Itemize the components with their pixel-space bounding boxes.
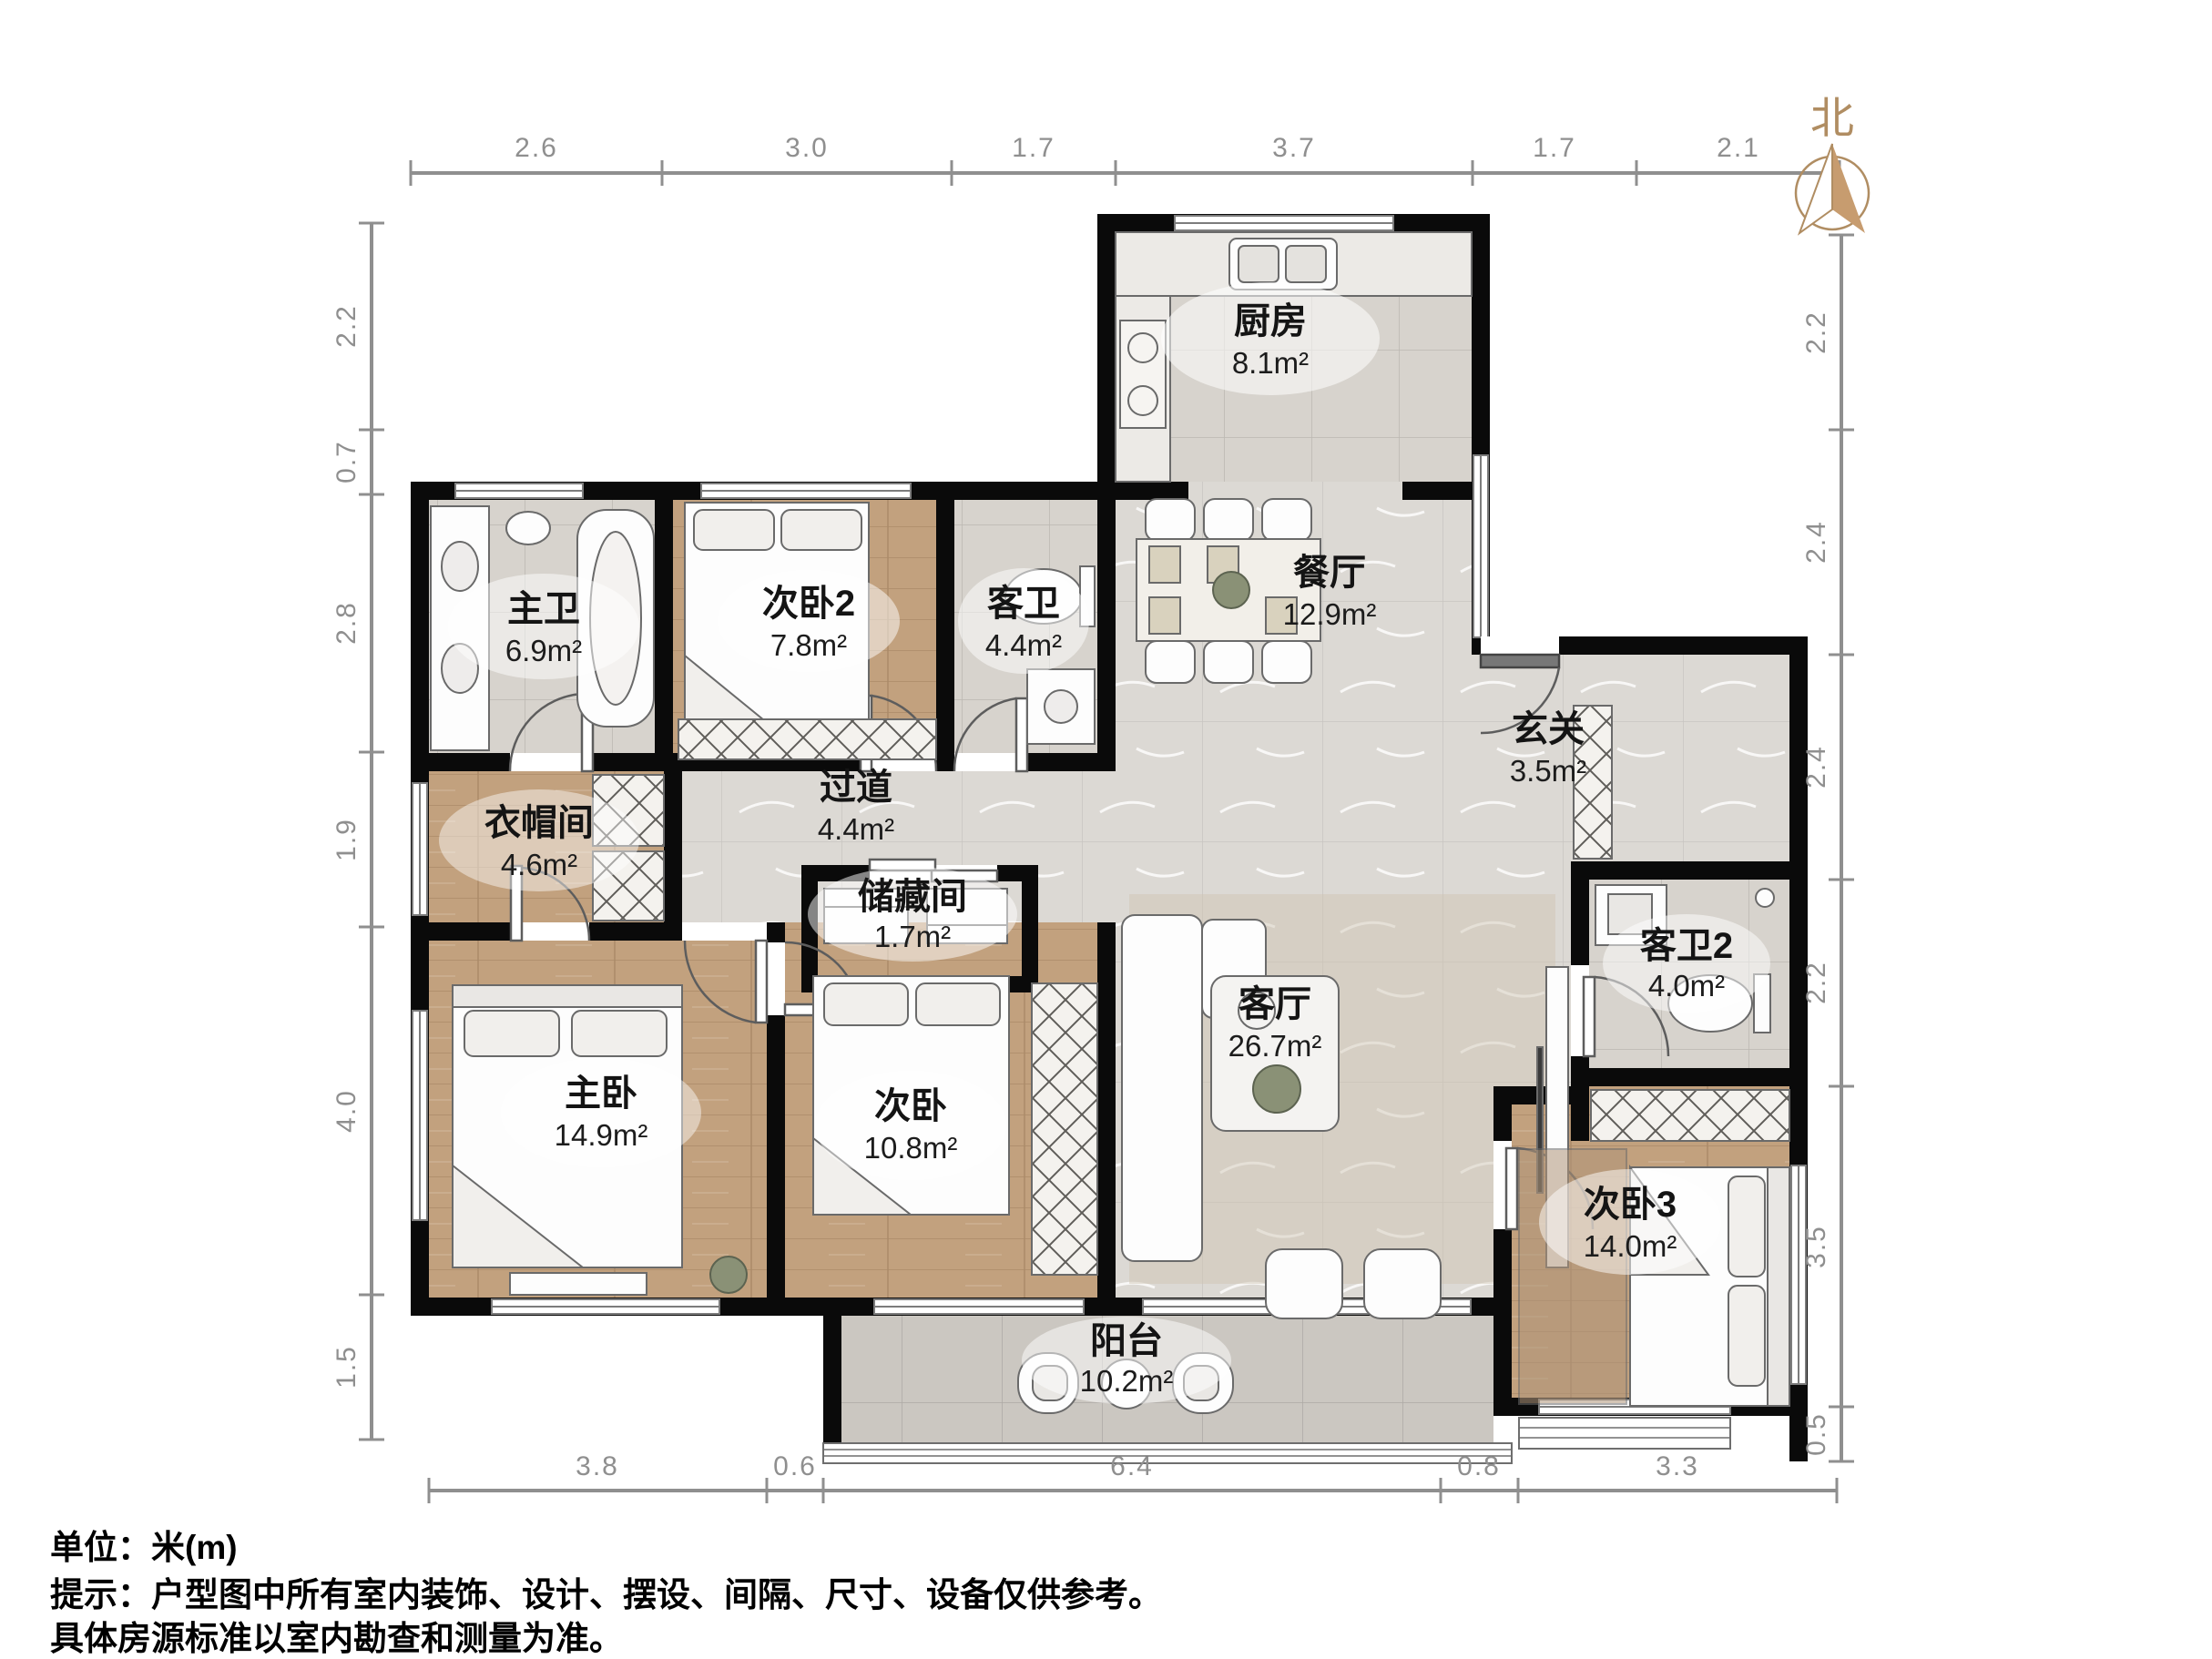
label-bedroom-second: 次卧 bbox=[874, 1086, 947, 1126]
dim-right-4: 2.2 bbox=[1801, 961, 1831, 1004]
area-entry: 3.5m² bbox=[1510, 754, 1586, 788]
dim-left-2: 0.7 bbox=[331, 440, 362, 483]
footer-disclaimer: 具体房源标准以室内勘查和测量为准。 bbox=[50, 1619, 623, 1657]
dim-bottom-3: 6.4 bbox=[1110, 1451, 1154, 1481]
dim-top-4: 3.7 bbox=[1272, 133, 1316, 163]
footer-hint: 提示：户型图中所有室内装饰、设计、摆设、间隔、尺寸、设备仅供参考。 bbox=[50, 1575, 1162, 1613]
area-kitchen: 8.1m² bbox=[1232, 346, 1309, 380]
sofa bbox=[1122, 915, 1202, 1261]
label-balcony: 阳台 bbox=[1090, 1321, 1163, 1361]
compass-north-label: 北 bbox=[1810, 95, 1854, 143]
dim-top-3: 1.7 bbox=[1012, 133, 1055, 163]
plant-living bbox=[1253, 1065, 1300, 1113]
armchair-living-2 bbox=[1364, 1249, 1441, 1318]
label-dining: 餐厅 bbox=[1293, 553, 1366, 593]
dim-left-5: 4.0 bbox=[331, 1089, 362, 1133]
label-bedroom3: 次卧3 bbox=[1584, 1185, 1677, 1225]
wall-mbath-bed2 bbox=[655, 500, 673, 753]
dim-bottom-1: 3.8 bbox=[576, 1451, 619, 1481]
footer-notes: 单位：米(m) 提示：户型图中所有室内装饰、设计、摆设、间隔、尺寸、设备仅供参考… bbox=[50, 1529, 1162, 1657]
label-storage: 储藏间 bbox=[858, 877, 967, 917]
wardrobe-bedroom-second bbox=[1032, 983, 1097, 1275]
area-corridor: 4.4m² bbox=[818, 812, 894, 846]
wall-balcony-left bbox=[823, 1316, 841, 1443]
wall-cloak-right bbox=[664, 771, 682, 922]
label-bedroom2: 次卧2 bbox=[762, 584, 855, 624]
wardrobe-bedroom2 bbox=[678, 719, 936, 759]
dim-left-4: 1.9 bbox=[331, 818, 362, 861]
balcony-railing bbox=[823, 1443, 1512, 1463]
area-living: 26.7m² bbox=[1228, 1029, 1322, 1063]
wall-kitchen-stub-left bbox=[1116, 482, 1188, 500]
area-balcony: 10.2m² bbox=[1080, 1364, 1174, 1398]
dim-bottom-5: 3.3 bbox=[1656, 1451, 1699, 1481]
wall-bed2-gbath bbox=[936, 500, 954, 753]
area-guest-bath2: 4.0m² bbox=[1648, 969, 1725, 1003]
toilet-master-bath bbox=[506, 512, 550, 545]
area-bedroom2: 7.8m² bbox=[770, 628, 847, 662]
label-living: 客厅 bbox=[1239, 984, 1311, 1024]
dim-right-1: 2.2 bbox=[1801, 310, 1831, 354]
dim-left-3: 2.8 bbox=[331, 601, 362, 645]
bay-railing-bedroom3 bbox=[1519, 1418, 1730, 1449]
label-guest-bath2: 客卫2 bbox=[1640, 926, 1733, 966]
label-kitchen: 厨房 bbox=[1234, 301, 1307, 341]
area-bedroom3: 14.0m² bbox=[1584, 1229, 1677, 1263]
compass-needle-outline bbox=[1799, 144, 1832, 233]
dim-right-3: 2.4 bbox=[1801, 745, 1831, 789]
dim-right-2: 2.4 bbox=[1801, 520, 1831, 564]
wall-living-left bbox=[1097, 922, 1116, 1316]
wall-bath2-top bbox=[1571, 861, 1789, 880]
kitchen-stove bbox=[1120, 321, 1166, 428]
wall-storage-right bbox=[1022, 865, 1038, 992]
compass: 北 bbox=[1796, 95, 1869, 233]
label-guest-bath: 客卫 bbox=[987, 584, 1060, 624]
wall-bedroom3-left-upper bbox=[1493, 1086, 1512, 1141]
plant-master bbox=[710, 1257, 747, 1293]
bed-bench bbox=[510, 1273, 647, 1295]
area-dining: 12.9m² bbox=[1283, 597, 1377, 631]
footer-unit: 单位：米(m) bbox=[50, 1529, 238, 1566]
label-master-bath: 主卫 bbox=[507, 589, 580, 629]
wall-gbath-dining bbox=[1097, 500, 1116, 771]
area-bedroom-second: 10.8m² bbox=[864, 1131, 958, 1165]
label-master-bedroom: 主卧 bbox=[565, 1074, 637, 1114]
wall-bath2-bottom bbox=[1571, 1068, 1808, 1086]
area-cloakroom: 4.6m² bbox=[501, 848, 577, 881]
dim-bottom-4: 0.8 bbox=[1457, 1451, 1501, 1481]
label-entry: 玄关 bbox=[1512, 709, 1585, 749]
wall-bedroom3-left-lower bbox=[1493, 1229, 1512, 1416]
floorplan-canvas: 厨房 8.1m² 餐厅 12.9m² 主卫 6.9m² 次卧2 7.8m² 客卫… bbox=[0, 0, 2212, 1659]
wall-kitchen-left bbox=[1097, 232, 1116, 500]
shower-head bbox=[1756, 889, 1774, 907]
dim-left-6: 1.5 bbox=[331, 1345, 362, 1389]
armchair-living-1 bbox=[1266, 1249, 1342, 1318]
area-guest-bath: 4.4m² bbox=[985, 628, 1062, 662]
dim-bottom-2: 0.6 bbox=[773, 1451, 817, 1481]
area-storage: 1.7m² bbox=[874, 920, 951, 953]
dim-top-2: 3.0 bbox=[785, 133, 829, 163]
dim-right-5: 3.5 bbox=[1801, 1225, 1831, 1268]
dim-top-1: 2.6 bbox=[515, 133, 558, 163]
dim-left-1: 2.2 bbox=[331, 304, 362, 348]
dim-right-6: 0.5 bbox=[1801, 1412, 1831, 1456]
floorplan-page: 厨房 8.1m² 餐厅 12.9m² 主卫 6.9m² 次卧2 7.8m² 客卫… bbox=[0, 0, 2212, 1659]
area-master-bath: 6.9m² bbox=[505, 634, 582, 667]
dim-top-5: 1.7 bbox=[1533, 133, 1576, 163]
label-cloakroom: 衣帽间 bbox=[484, 803, 594, 843]
label-corridor: 过道 bbox=[820, 768, 892, 808]
dining-plant bbox=[1213, 572, 1249, 608]
area-master-bedroom: 14.9m² bbox=[555, 1118, 648, 1152]
dim-top-6: 2.1 bbox=[1717, 133, 1760, 163]
wardrobe-bedroom3 bbox=[1591, 1090, 1789, 1141]
